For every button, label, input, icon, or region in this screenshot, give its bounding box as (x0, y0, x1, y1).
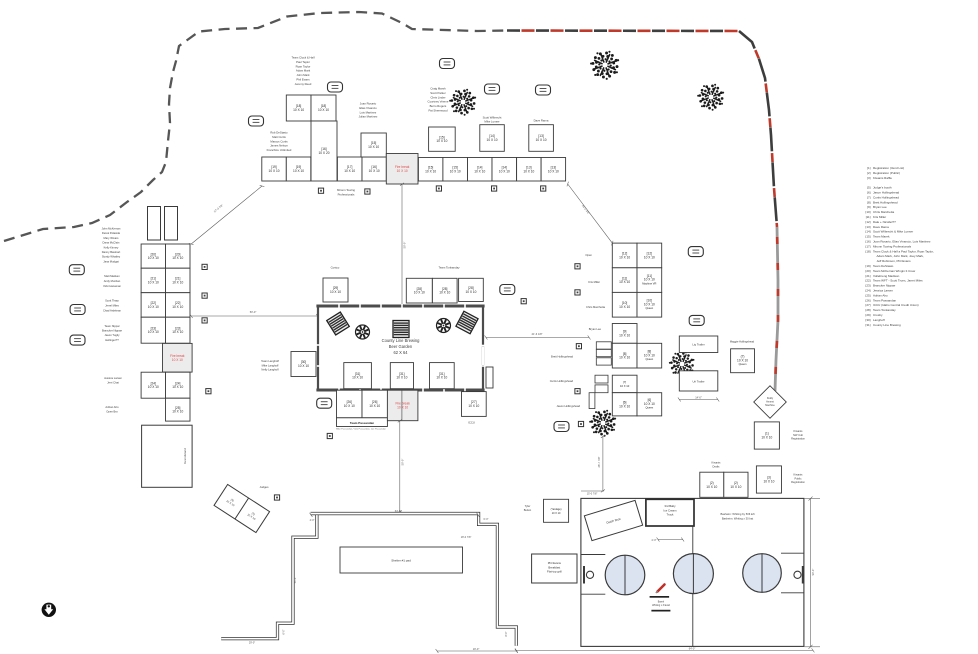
svg-text:Truck: Truck (667, 513, 674, 517)
svg-text:Danny Bastnart: Danny Bastnart (102, 250, 121, 254)
svg-text:Chris Marchetta: Chris Marchetta (586, 305, 605, 309)
svg-text:Basheim: Whiting by 50ft left: Basheim: Whiting by 50ft left (720, 512, 754, 516)
svg-text:Team Langhoff: Team Langhoff (261, 359, 279, 363)
svg-text:[22]: [22] (865, 279, 870, 283)
svg-text:10 X 10: 10 X 10 (293, 169, 304, 173)
svg-text:10 X 10: 10 X 10 (148, 256, 159, 260)
svg-text:Team WFT - Scott Truex, Jarret: Team WFT - Scott Truex, Jarret Miles (873, 279, 923, 283)
svg-text:10 X 10: 10 X 10 (436, 376, 447, 380)
svg-text:10 X 10: 10 X 10 (620, 384, 630, 388)
svg-text:Marcus Curtis: Marcus Curtis (270, 139, 288, 143)
svg-text:Brancker Nippae: Brancker Nippae (102, 329, 123, 333)
svg-text:[26]: [26] (865, 298, 870, 302)
svg-text:John Mark: John Mark (296, 73, 310, 77)
svg-text:Paul Taylor: Paul Taylor (296, 60, 310, 64)
svg-text:10 X 10: 10 X 10 (619, 333, 630, 337)
svg-text:Stordy Whatley: Stordy Whatley (102, 255, 121, 259)
svg-text:10 X 10: 10 X 10 (523, 169, 534, 173)
svg-text:[29]: [29] (865, 313, 870, 317)
svg-text:64'-0": 64'-0" (395, 509, 402, 513)
svg-text:10 X 10: 10 X 10 (644, 278, 655, 282)
svg-text:10 X 10: 10 X 10 (344, 169, 355, 173)
svg-text:Brett Hollingshead: Brett Hollingshead (551, 355, 573, 359)
svg-text:[6]: [6] (867, 191, 871, 195)
svg-text:[16]: [16] (865, 240, 870, 244)
svg-text:10 X 10: 10 X 10 (397, 169, 408, 173)
svg-text:10 X 10: 10 X 10 (414, 291, 425, 295)
svg-text:14'-0": 14'-0" (695, 396, 702, 400)
svg-text:[23]: [23] (865, 284, 870, 288)
svg-text:Adam Mark: Adam Mark (296, 69, 311, 73)
svg-text:10 X 10: 10 X 10 (487, 138, 498, 142)
svg-text:Open Bro: Open Bro (106, 410, 118, 414)
svg-text:Liq Trailer: Liq Trailer (692, 343, 704, 347)
svg-text:Team Passandan: Team Passandan (873, 298, 897, 302)
svg-text:Nelly Langhoff: Nelly Langhoff (261, 368, 278, 372)
svg-text:Flat-top grill: Flat-top grill (547, 570, 562, 574)
svg-text:Open: Open (585, 253, 592, 257)
svg-text:Phil Evans: Phil Evans (296, 78, 310, 82)
svg-text:Mike Lunser: Mike Lunser (484, 120, 499, 124)
svg-text:50'-0": 50'-0" (400, 459, 404, 466)
svg-text:Judges: Judges (259, 485, 269, 489)
svg-text:NW Cult: NW Cult (793, 433, 803, 437)
svg-text:Franchize Unlimited: Franchize Unlimited (267, 148, 292, 152)
svg-text:15'-0 7/8": 15'-0 7/8" (587, 493, 598, 496)
svg-text:Jeff Robinson, Phil Evans: Jeff Robinson, Phil Evans (877, 259, 912, 263)
svg-text:[30]: [30] (865, 318, 870, 322)
svg-text:[14]: [14] (865, 230, 870, 234)
svg-text:Brancker Nippae: Brancker Nippae (873, 284, 896, 288)
svg-text:4'-0": 4'-0" (310, 519, 315, 522)
svg-text:10 X 20: 10 X 20 (319, 151, 330, 155)
svg-text:10 X 10: 10 X 10 (450, 169, 461, 173)
svg-text:Machine: Machine (765, 404, 775, 407)
svg-text:10 X 10: 10 X 10 (619, 280, 630, 284)
svg-text:Brett Hollingshead: Brett Hollingshead (873, 200, 898, 204)
svg-text:Team Clock & Half a Paul Taylo: Team Clock & Half a Paul Taylor, Ryan Ta… (873, 249, 934, 253)
svg-text:Barrel: Barrel (658, 600, 665, 603)
svg-text:10 X 10: 10 X 10 (619, 255, 630, 259)
svg-text:Queen: Queen (645, 357, 653, 361)
svg-text:Elias Vivancio: Elias Vivancio (359, 106, 377, 110)
svg-text:10 X 10: 10 X 10 (344, 404, 355, 408)
svg-text:10 X 10: 10 X 10 (269, 169, 280, 173)
svg-text:[27]: [27] (865, 303, 870, 307)
svg-text:Rob DeStasio: Rob DeStasio (270, 131, 288, 135)
svg-text:10 X 10: 10 X 10 (644, 255, 655, 259)
svg-text:10 X 10: 10 X 10 (499, 169, 510, 173)
svg-text:Team Marek: Team Marek (873, 235, 890, 239)
svg-text:Judge's booth: Judge's booth (873, 186, 892, 190)
svg-text:10 X 10: 10 X 10 (536, 138, 547, 142)
svg-text:10 X 10: 10 X 10 (644, 353, 655, 357)
svg-text:[3]: [3] (867, 176, 871, 180)
svg-text:19'-0": 19'-0" (473, 647, 480, 651)
svg-text:[11]: [11] (866, 215, 871, 219)
svg-text:10 X 10: 10 X 10 (619, 404, 630, 408)
svg-text:10 X 10: 10 X 10 (318, 108, 329, 112)
svg-text:10 X 10: 10 X 10 (439, 291, 450, 295)
svg-text:Team Clock & Half: Team Clock & Half (291, 56, 314, 60)
svg-text:[24]: [24] (865, 289, 870, 293)
svg-text:ICCU: ICCU (468, 421, 475, 425)
svg-text:Costco: Costco (331, 266, 340, 270)
svg-text:Julian Martinez: Julian Martinez (359, 115, 378, 119)
svg-text:Machine VR: Machine VR (642, 282, 656, 286)
svg-text:10 X 10: 10 X 10 (436, 139, 447, 143)
svg-text:10 X 10: 10 X 10 (730, 485, 741, 489)
svg-text:Crosby: Crosby (873, 313, 883, 317)
svg-text:50'-0": 50'-0" (250, 310, 257, 314)
svg-text:Vicki Hanaman: Vicki Hanaman (103, 284, 122, 288)
svg-text:Shelter #1 pad: Shelter #1 pad (391, 559, 411, 563)
svg-text:[2]: [2] (867, 171, 871, 175)
svg-text:Craig Marsh: Craig Marsh (430, 87, 446, 91)
svg-text:10 X 10: 10 X 10 (644, 302, 655, 306)
svg-text:Adrian Aho: Adrian Aho (873, 293, 888, 297)
svg-text:Mironn Towing Professionals: Mironn Towing Professionals (873, 244, 912, 248)
svg-text:Dave Rama: Dave Rama (873, 225, 889, 229)
svg-text:Adam Mark, John Mark, Joey Mar: Adam Mark, John Mark, Joey Mark, (877, 254, 925, 258)
svg-text:18'-0 7/8": 18'-0 7/8" (461, 536, 472, 539)
svg-text:Mike Passandan, Vicki Passanda: Mike Passandan, Vicki Passandan, Joe Pas… (336, 428, 387, 430)
svg-text:[12]: [12] (865, 220, 870, 224)
svg-text:6'-0": 6'-0" (484, 518, 489, 521)
svg-text:Registration (Vend List): Registration (Vend List) (873, 166, 904, 170)
svg-text:Adrian Aho: Adrian Aho (105, 405, 119, 409)
svg-text:Uri Trailer: Uri Trailer (692, 380, 704, 384)
svg-text:Luis Martinez: Luis Martinez (360, 110, 377, 114)
svg-text:[20]: [20] (865, 269, 870, 273)
svg-text:County Line Brewing: County Line Brewing (382, 338, 420, 343)
svg-text:Jessica Larsen: Jessica Larsen (873, 289, 893, 293)
svg-text:10 X 10: 10 X 10 (172, 305, 183, 309)
svg-text:Queen: Queen (645, 406, 653, 410)
svg-text:10 X 10: 10 X 10 (548, 169, 559, 173)
svg-text:[10]: [10] (865, 210, 870, 214)
svg-text:10 X 10: 10 X 10 (552, 512, 561, 515)
svg-text:Maggie Hollingshead: Maggie Hollingshead (730, 340, 755, 344)
svg-text:10 X 10: 10 X 10 (148, 305, 159, 309)
svg-text:Queen: Queen (739, 362, 747, 366)
svg-text:Professionals: Professionals (338, 192, 355, 196)
svg-text:Bryan Lee: Bryan Lee (873, 205, 887, 209)
svg-text:[7]: [7] (623, 380, 626, 384)
svg-text:Vollebreng Madison: Vollebreng Madison (873, 274, 900, 278)
svg-text:Juan Rosario: Juan Rosario (360, 102, 377, 106)
svg-text:Jason Hollingshead: Jason Hollingshead (557, 404, 581, 408)
svg-text:Kris Miller: Kris Miller (588, 280, 600, 284)
svg-text:[25]: [25] (865, 293, 870, 297)
svg-text:Jerrel Miles: Jerrel Miles (105, 304, 119, 308)
svg-text:[8]: [8] (867, 200, 871, 204)
svg-text:Scott Wilbrecht & Mike Lunser: Scott Wilbrecht & Mike Lunser (873, 230, 913, 234)
svg-text:26'-7 7/8": 26'-7 7/8" (597, 456, 601, 467)
svg-text:Team Passandan: Team Passandan (350, 421, 374, 425)
svg-text:Kiwanis: Kiwanis (712, 461, 722, 465)
svg-text:[15]: [15] (865, 235, 870, 239)
svg-text:Kiwanis Raffle: Kiwanis Raffle (873, 176, 892, 180)
svg-text:[5]: [5] (867, 186, 871, 190)
svg-text:Drafts: Drafts (713, 464, 721, 468)
svg-text:Mike Langhoff: Mike Langhoff (262, 363, 279, 367)
svg-text:Mary Wixars: Mary Wixars (104, 236, 120, 240)
svg-text:10 X 10: 10 X 10 (172, 280, 183, 284)
svg-text:10 X 10: 10 X 10 (172, 256, 183, 260)
svg-text:29'-0": 29'-0" (249, 642, 255, 645)
svg-text:10 X 10: 10 X 10 (298, 364, 309, 368)
svg-text:[13]: [13] (865, 225, 870, 229)
svg-text:ICCU (Idaho Central Credit Uni: ICCU (Idaho Central Credit Union) (873, 303, 919, 307)
svg-text:Courtney Vrieme: Courtney Vrieme (428, 100, 449, 104)
svg-text:10 X 10: 10 X 10 (352, 376, 363, 380)
svg-text:[1]: [1] (867, 166, 871, 170)
svg-text:10 X 10: 10 X 10 (706, 485, 717, 489)
svg-text:10 X 10: 10 X 10 (761, 436, 772, 440)
svg-text:50'-0": 50'-0" (403, 242, 407, 249)
svg-text:10 X 10: 10 X 10 (148, 330, 159, 334)
svg-text:Juan Rosario, Elias Vivancio,: Juan Rosario, Elias Vivancio, Luis Marti… (873, 240, 931, 244)
svg-text:Jason Hollingshead: Jason Hollingshead (873, 191, 900, 195)
svg-text:Scott Tharp: Scott Tharp (105, 299, 119, 303)
svg-text:10 X 10: 10 X 10 (397, 405, 408, 409)
svg-text:Curtis Hollingshead: Curtis Hollingshead (550, 379, 574, 383)
svg-text:Chad Ardebran: Chad Ardebran (103, 309, 122, 313)
svg-text:(Yardage): (Yardage) (551, 508, 562, 511)
svg-text:[19]: [19] (865, 264, 870, 268)
svg-text:Whiting x 3 Evail: Whiting x 3 Evail (652, 604, 670, 607)
svg-text:10 X 10: 10 X 10 (737, 358, 748, 362)
svg-text:Tyler: Tyler (525, 504, 531, 508)
svg-text:10 X 10: 10 X 10 (465, 290, 476, 294)
svg-text:Queen: Queen (645, 306, 653, 310)
svg-text:10 X 10: 10 X 10 (468, 404, 479, 408)
svg-text:Kris Miller: Kris Miller (873, 215, 886, 219)
svg-text:10 X 10: 10 X 10 (396, 376, 407, 380)
svg-text:Kiwanis: Kiwanis (794, 429, 804, 433)
svg-text:Beer Garden: Beer Garden (389, 344, 413, 349)
svg-text:Team Tonkanday: Team Tonkanday (438, 265, 460, 269)
svg-text:90'-0": 90'-0" (811, 569, 815, 576)
svg-text:10 X 10: 10 X 10 (619, 356, 630, 360)
svg-text:Dale + Nicollet??: Dale + Nicollet?? (873, 220, 896, 224)
svg-text:[17]: [17] (865, 244, 870, 248)
svg-text:Jana Mudgat: Jana Mudgat (103, 259, 119, 263)
svg-text:John McKernan: John McKernan (102, 227, 121, 231)
svg-text:Scott Parker: Scott Parker (430, 91, 445, 95)
svg-text:50'-0": 50'-0" (294, 577, 297, 583)
svg-text:Berro Rogers: Berro Rogers (430, 104, 447, 108)
svg-text:41'-6 1/8": 41'-6 1/8" (532, 332, 543, 336)
svg-text:[28]: [28] (865, 308, 870, 312)
svg-text:Team DeStasio: Team DeStasio (873, 264, 894, 268)
svg-text:4'-0": 4'-0" (651, 538, 656, 542)
svg-text:James Nelson: James Nelson (270, 144, 288, 148)
svg-text:10 X 10: 10 X 10 (763, 480, 774, 484)
svg-text:Chris Marchetta: Chris Marchetta (873, 210, 895, 214)
svg-text:Jessica Larsen: Jessica Larsen (104, 376, 122, 380)
svg-text:10 X 10: 10 X 10 (172, 410, 183, 414)
svg-text:[31]: [31] (865, 323, 870, 327)
svg-text:Dave Rama: Dave Rama (534, 119, 549, 123)
svg-text:[9]: [9] (867, 205, 871, 209)
svg-text:Public: Public (794, 476, 802, 480)
svg-text:Grandstand: Grandstand (183, 448, 187, 464)
svg-text:10 X 10: 10 X 10 (293, 108, 304, 112)
svg-text:10 X 10: 10 X 10 (369, 169, 380, 173)
svg-text:10 X 10: 10 X 10 (368, 145, 379, 149)
svg-text:10 X 10: 10 X 10 (172, 385, 183, 389)
svg-text:County Line Brewing: County Line Brewing (873, 323, 901, 327)
svg-text:Bryan Lee: Bryan Lee (589, 327, 602, 331)
svg-text:Matt Curtis: Matt Curtis (272, 135, 286, 139)
svg-text:Team McKernan Wingin It Crew: Team McKernan Wingin It Crew (873, 269, 916, 273)
svg-text:[21]: [21] (865, 274, 870, 278)
svg-text:Curtis Hollingshead: Curtis Hollingshead (873, 195, 899, 199)
svg-text:Jason Tugliy: Jason Tugliy (105, 333, 121, 337)
svg-text:Registration: Registration (791, 437, 805, 441)
svg-text:Derek Polaside: Derek Polaside (102, 231, 121, 235)
svg-text:Dana McClain: Dana McClain (103, 241, 120, 245)
svg-text:64'-0": 64'-0" (689, 646, 696, 650)
svg-text:10 X 10: 10 X 10 (172, 358, 183, 362)
svg-text:Matt Madsen: Matt Madsen (104, 274, 120, 278)
svg-text:Ryan Taylor: Ryan Taylor (296, 64, 311, 68)
svg-text:10 X 10: 10 X 10 (330, 290, 341, 294)
svg-text:Andy Munban: Andy Munban (104, 279, 121, 283)
svg-text:Chris Linder: Chris Linder (430, 95, 445, 99)
svg-text:6'-0": 6'-0" (283, 629, 286, 634)
svg-text:[18]: [18] (865, 249, 870, 253)
svg-text:10 X 10: 10 X 10 (474, 169, 485, 173)
svg-text:Registration: Registration (791, 480, 805, 484)
svg-text:Basheim: Whiting x 30 bat: Basheim: Whiting x 30 bat (722, 517, 753, 521)
svg-text:10 X 10: 10 X 10 (148, 385, 159, 389)
svg-text:Langhoff: Langhoff (873, 318, 885, 322)
svg-text:Team Nippar: Team Nippar (104, 324, 119, 328)
svg-text:10 X 10: 10 X 10 (425, 169, 436, 173)
svg-text:10 X 10: 10 X 10 (148, 280, 159, 284)
svg-text:10 X 10: 10 X 10 (619, 305, 630, 309)
svg-text:Pat Sheerwood: Pat Sheerwood (428, 109, 448, 113)
svg-text:10 X 10: 10 X 10 (644, 402, 655, 406)
svg-text:62 X 64: 62 X 64 (393, 350, 408, 355)
svg-text:[7]: [7] (867, 195, 871, 199)
svg-text:Jerri Chat: Jerri Chat (107, 381, 119, 385)
svg-text:Registration (Public): Registration (Public) (873, 171, 900, 175)
svg-text:Kelly Kinney: Kelly Kinney (104, 245, 119, 249)
svg-text:10 X 10: 10 X 10 (172, 330, 183, 334)
svg-text:Team Tonkanday: Team Tonkanday (873, 308, 896, 312)
svg-text:Kiwanis: Kiwanis (794, 473, 804, 477)
svg-text:Button: Button (524, 508, 532, 512)
svg-text:Hellinger??: Hellinger?? (105, 338, 119, 342)
svg-text:10 X 10: 10 X 10 (369, 404, 380, 408)
svg-text:8'-0": 8'-0" (505, 631, 508, 636)
svg-text:Jeremy Reed: Jeremy Reed (295, 82, 312, 86)
